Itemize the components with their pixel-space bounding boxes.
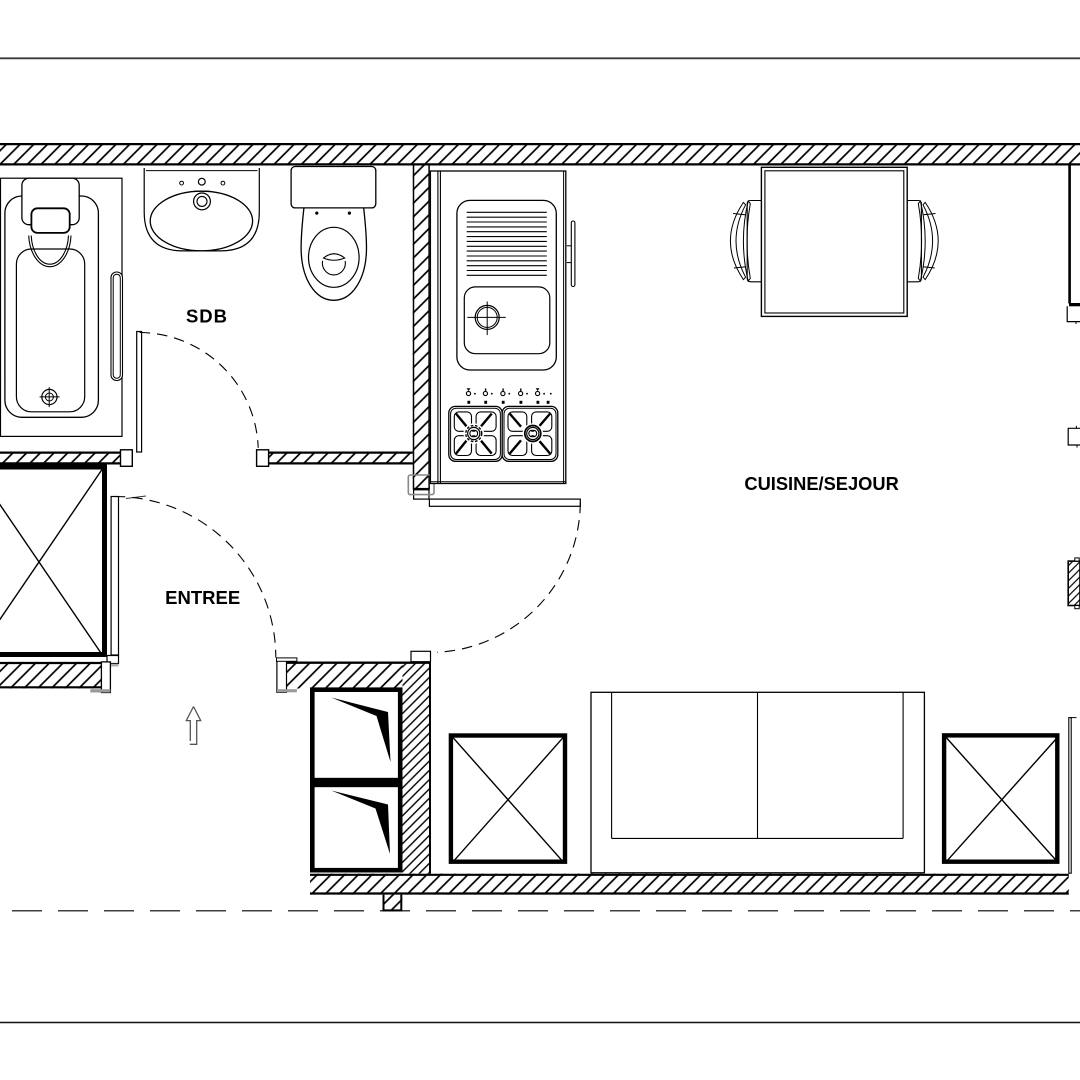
svg-text:SDB: SDB [186, 305, 228, 326]
svg-text:CUISINE/SEJOUR: CUISINE/SEJOUR [744, 473, 898, 494]
svg-text:ENTREE: ENTREE [165, 587, 240, 608]
